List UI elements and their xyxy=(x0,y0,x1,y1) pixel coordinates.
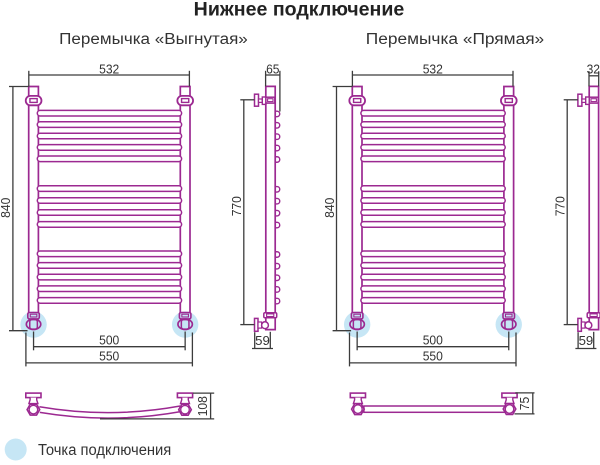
svg-text:532: 532 xyxy=(423,61,443,76)
svg-text:59: 59 xyxy=(255,333,270,348)
svg-text:108: 108 xyxy=(195,396,210,416)
svg-text:Перемычка «Прямая»: Перемычка «Прямая» xyxy=(366,31,544,48)
svg-text:840: 840 xyxy=(0,198,13,218)
svg-text:500: 500 xyxy=(99,332,119,347)
svg-text:32: 32 xyxy=(587,61,600,76)
svg-text:770: 770 xyxy=(553,196,568,216)
svg-text:550: 550 xyxy=(423,349,443,364)
svg-text:840: 840 xyxy=(322,198,337,218)
svg-text:550: 550 xyxy=(99,349,119,364)
svg-text:75: 75 xyxy=(517,397,532,410)
svg-text:Точка подключения: Точка подключения xyxy=(38,442,171,459)
svg-text:500: 500 xyxy=(423,332,443,347)
svg-text:Перемычка «Выгнутая»: Перемычка «Выгнутая» xyxy=(59,31,248,48)
svg-text:Нижнее подключение: Нижнее подключение xyxy=(194,0,405,20)
svg-text:532: 532 xyxy=(99,61,119,76)
svg-text:59: 59 xyxy=(579,333,594,348)
svg-text:770: 770 xyxy=(229,196,244,216)
svg-text:65: 65 xyxy=(266,61,279,76)
